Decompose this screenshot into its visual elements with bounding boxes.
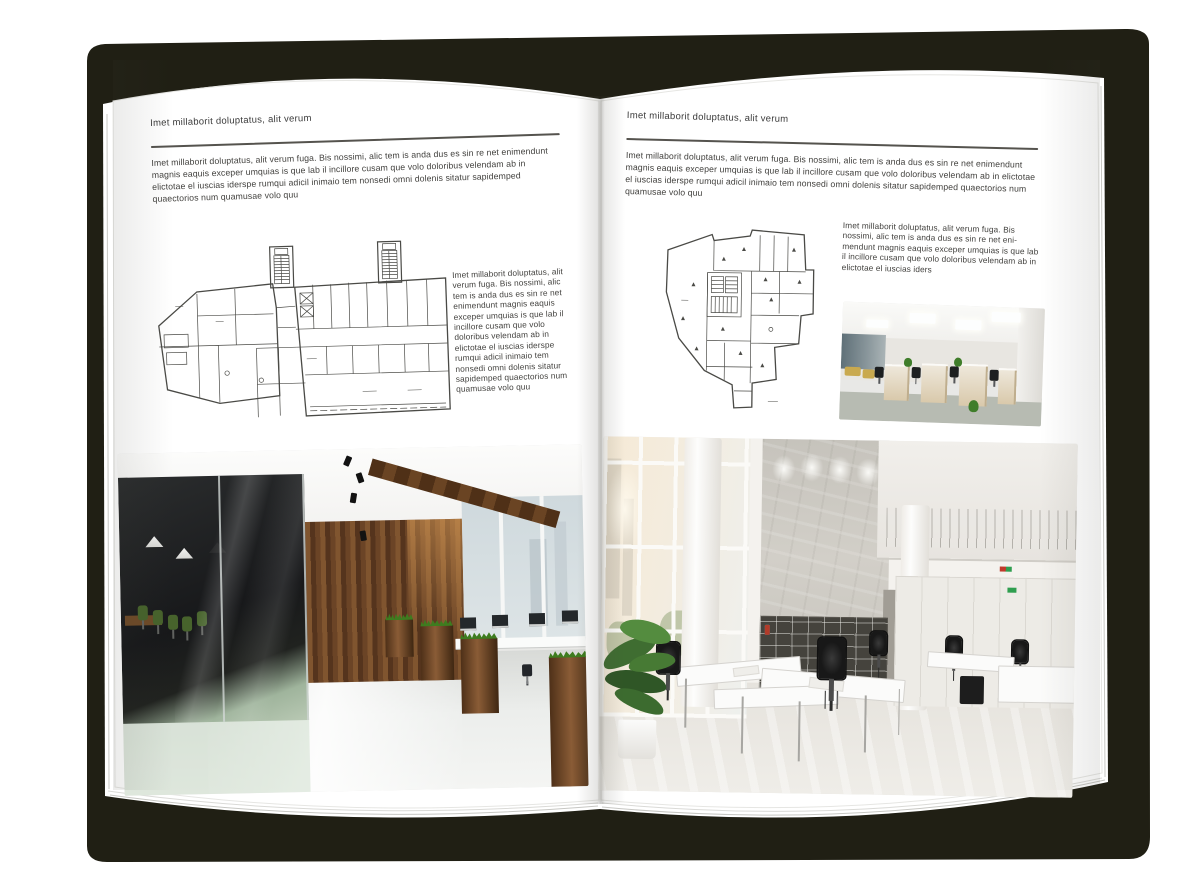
downlight-glow (800, 453, 823, 481)
downlight-glow (857, 458, 880, 486)
desk-cabinet (998, 666, 1076, 705)
monitor (529, 613, 545, 626)
desk-cabinet (920, 363, 948, 403)
left-page-text-block: Imet millaborit doluptatus, alit verum I… (150, 105, 562, 204)
sofa (845, 367, 861, 377)
monitor (460, 617, 476, 630)
glass-floor-reflection (123, 717, 310, 796)
plant-pot (618, 720, 657, 760)
green-chair (135, 605, 150, 631)
small-plant (904, 358, 912, 367)
concrete-wall (759, 439, 890, 639)
grass-planter (549, 656, 589, 787)
safety-sign (1000, 567, 1012, 572)
magazine-mockup: Imet millaborit doluptatus, alit verum I… (0, 0, 1200, 891)
interior-window (841, 333, 887, 370)
sun-glare (605, 464, 645, 554)
right-caption: Imet millaborit doluptatus, alit verum f… (842, 220, 1041, 278)
grass-planter (460, 637, 499, 713)
downlight-glow (828, 456, 851, 484)
exit-sign (1007, 588, 1016, 593)
right-intro-paragraph: Imet millaborit doluptatus, alit verum f… (625, 149, 1038, 207)
right-head-rule (626, 138, 1038, 150)
desk-cabinet (997, 368, 1016, 404)
binder (765, 625, 770, 635)
light-panel (866, 319, 888, 328)
black-office-chair (818, 638, 859, 713)
monitor (492, 615, 508, 628)
desk-cabinet (884, 364, 909, 400)
left-caption: Imet millaborit doluptatus, alit verum f… (452, 266, 572, 395)
monitor (562, 610, 578, 623)
sofa (863, 369, 875, 378)
grass-planter (385, 619, 414, 657)
office-photo-left (117, 444, 588, 796)
light-panel (992, 311, 1021, 323)
light-panel (909, 313, 936, 323)
glass-reflection (170, 474, 309, 723)
right-page-text-block: Imet millaborit doluptatus, alit verum I… (625, 110, 1039, 207)
black-office-chair (870, 632, 895, 674)
floor-plan-left (154, 239, 453, 425)
green-chair (150, 610, 165, 636)
light-panel (955, 320, 982, 330)
grass-planter (420, 625, 454, 680)
office-chair (521, 664, 533, 684)
waste-bin (960, 676, 984, 705)
floor-plan-right (650, 220, 841, 421)
office-photo-right (598, 436, 1078, 797)
glass-meeting-room (118, 474, 309, 724)
office-photo-small (839, 302, 1045, 427)
pendant-lamp (145, 536, 163, 547)
downlight-glow (772, 455, 795, 483)
